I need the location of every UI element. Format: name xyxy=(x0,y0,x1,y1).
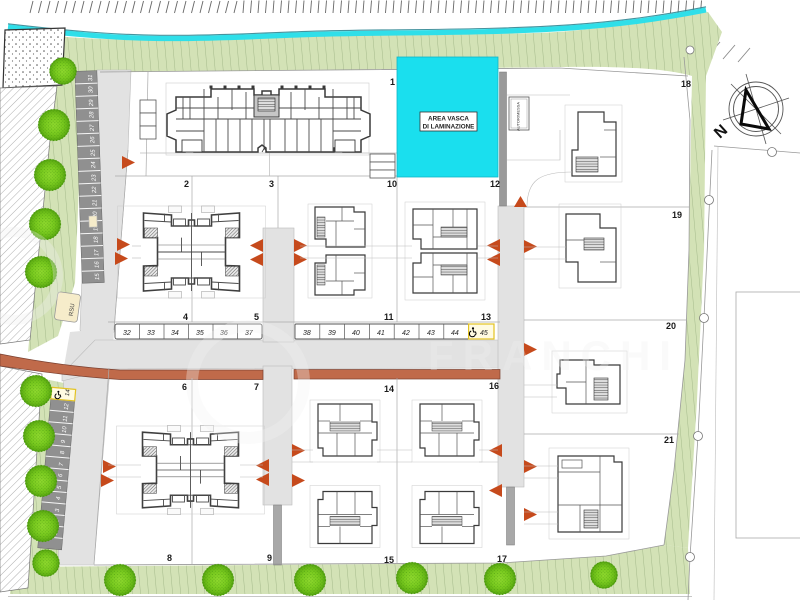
svg-text:3: 3 xyxy=(269,179,274,189)
svg-text:18: 18 xyxy=(94,236,100,244)
svg-text:1: 1 xyxy=(390,77,395,87)
svg-text:AREA VASCA: AREA VASCA xyxy=(428,116,469,123)
svg-text:7: 7 xyxy=(254,382,259,392)
svg-text:24: 24 xyxy=(91,161,97,170)
svg-text:8: 8 xyxy=(167,553,172,563)
svg-text:42: 42 xyxy=(402,330,410,337)
svg-text:30: 30 xyxy=(88,86,94,94)
svg-text:18: 18 xyxy=(681,79,691,89)
svg-text:13: 13 xyxy=(481,312,491,322)
svg-text:17: 17 xyxy=(94,249,100,257)
svg-text:40: 40 xyxy=(352,330,360,337)
svg-text:20: 20 xyxy=(666,321,676,331)
svg-text:22: 22 xyxy=(92,186,98,195)
svg-text:35: 35 xyxy=(196,330,204,337)
svg-text:28: 28 xyxy=(89,111,95,120)
svg-text:21: 21 xyxy=(92,199,98,207)
svg-text:38: 38 xyxy=(303,330,311,337)
svg-text:34: 34 xyxy=(171,330,179,337)
svg-text:12: 12 xyxy=(64,403,71,411)
svg-text:FRANCHI: FRANCHI xyxy=(428,332,680,379)
svg-text:11: 11 xyxy=(63,415,70,422)
svg-text:21: 21 xyxy=(664,435,674,445)
svg-text:23: 23 xyxy=(91,174,97,183)
svg-text:16: 16 xyxy=(94,261,100,269)
svg-text:19: 19 xyxy=(672,210,682,220)
svg-text:33: 33 xyxy=(147,330,155,337)
svg-text:12: 12 xyxy=(490,179,500,189)
svg-text:17: 17 xyxy=(497,554,507,564)
svg-text:11: 11 xyxy=(384,312,394,322)
svg-text:15: 15 xyxy=(95,273,101,281)
svg-text:16: 16 xyxy=(489,381,499,391)
svg-text:14: 14 xyxy=(65,389,72,397)
svg-text:14: 14 xyxy=(384,384,394,394)
svg-text:15: 15 xyxy=(384,555,394,565)
svg-text:DI LAMINAZIONE: DI LAMINAZIONE xyxy=(423,124,475,131)
svg-text:27: 27 xyxy=(90,124,96,133)
svg-text:41: 41 xyxy=(377,330,385,337)
svg-text:10: 10 xyxy=(62,425,69,433)
svg-text:29: 29 xyxy=(89,99,95,108)
svg-text:10: 10 xyxy=(387,179,397,189)
svg-text:32: 32 xyxy=(123,330,131,337)
svg-text:4: 4 xyxy=(183,312,188,322)
svg-text:AUTORIMESSA: AUTORIMESSA xyxy=(516,102,521,131)
svg-text:31: 31 xyxy=(88,74,94,81)
svg-text:39: 39 xyxy=(328,330,336,337)
svg-text:25: 25 xyxy=(91,149,97,158)
svg-text:2: 2 xyxy=(184,179,189,189)
svg-text:26: 26 xyxy=(90,136,96,145)
svg-text:9: 9 xyxy=(267,553,272,563)
